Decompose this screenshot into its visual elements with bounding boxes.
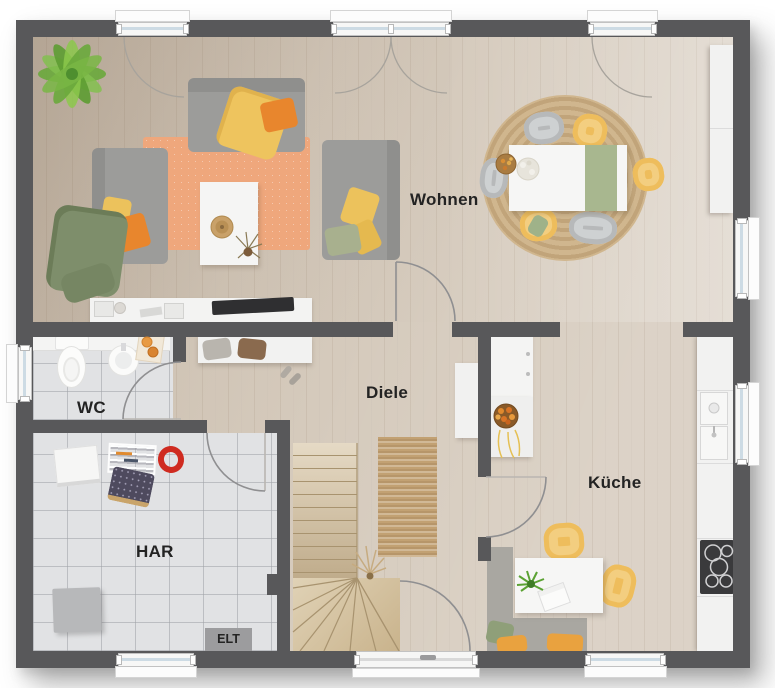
window-sill-top-3: [587, 10, 658, 22]
fridge-handle-2: [526, 372, 530, 376]
floor-plan-screenshot: ELT: [0, 0, 775, 688]
wall-har-east: [277, 420, 290, 651]
counter-seam-2: [697, 463, 733, 464]
window-sill-right-1: [748, 217, 760, 300]
coffee-table: [200, 182, 258, 265]
window-cap: [660, 655, 666, 665]
window-cap: [183, 24, 189, 34]
window-top-1: [118, 22, 187, 36]
hall-runner-rug: [378, 437, 437, 557]
room-label-kueche: Küche: [588, 473, 641, 493]
wall-mid-east: [683, 322, 750, 337]
wall-wc-har: [16, 420, 207, 433]
staircase-straight-flight: [293, 443, 357, 578]
room-label-har: HAR: [136, 542, 174, 562]
sideboard-round-box: [114, 302, 126, 314]
cooktop: [700, 540, 734, 594]
toilet-seat: [63, 357, 80, 382]
window-sill-left: [6, 344, 18, 403]
window-cap: [445, 24, 451, 34]
staircase-winder: [293, 578, 400, 651]
sink-cabinet-upper: [700, 392, 728, 425]
window-sill-top-2: [330, 10, 452, 22]
room-label-diele: Diele: [366, 383, 408, 403]
window-cap: [588, 24, 594, 34]
window-cap: [737, 218, 747, 224]
window-sill-top-1: [115, 10, 190, 22]
counter-seam-3: [697, 538, 733, 539]
wall-mid-west: [16, 322, 393, 337]
window-sill-bottom-2: [584, 666, 667, 678]
window-dining-right: [735, 220, 749, 297]
window-cap: [737, 383, 747, 389]
wall-wc-stub: [173, 337, 186, 362]
window-cap: [331, 24, 337, 34]
window-cap: [20, 345, 30, 351]
wardrobe-bag-gray: [202, 337, 233, 361]
counter-seam-1: [697, 390, 733, 391]
green-pillow-armchair: [324, 223, 362, 256]
sideboard-books-2: [164, 303, 184, 319]
wall-har-notch: [267, 574, 277, 595]
entry-door-sill: [352, 668, 480, 678]
wardrobe-bag-brown: [237, 338, 267, 361]
room-label-wohnen: Wohnen: [410, 190, 479, 210]
dining-table-runner-green: [585, 145, 617, 211]
sideboard-books-1: [94, 301, 114, 317]
kitchen-chair-yellow-1: [543, 522, 585, 562]
window-cap: [116, 24, 122, 34]
window-cap: [354, 655, 360, 665]
bench-pillow-orange-2: [547, 633, 584, 653]
sink-cabinet-lower: [700, 426, 728, 460]
window-mullion: [388, 24, 394, 34]
kitchen-side-counter: [487, 397, 533, 457]
washing-machine: [53, 445, 101, 487]
window-cap: [585, 655, 591, 665]
wall-mid-center: [452, 322, 560, 337]
kitchen-counter-right: [697, 337, 733, 651]
fridge-cabinet: [487, 335, 533, 397]
elt-label: ELT: [217, 632, 240, 646]
hall-slim-cabinet: [455, 363, 478, 438]
window-top-3: [590, 22, 655, 36]
wc-sink-basin: [115, 352, 132, 369]
window-cap: [116, 655, 122, 665]
wall-kitchen-hall-lower: [478, 537, 491, 561]
window-cap: [20, 396, 30, 402]
dining-cabinet-seam: [710, 128, 733, 129]
window-kitchen-bottom: [587, 653, 664, 667]
window-cap: [472, 655, 478, 665]
window-cap: [737, 293, 747, 299]
window-sill-bottom-1: [115, 666, 197, 678]
window-cap: [651, 24, 657, 34]
window-wc-left: [18, 347, 32, 400]
wc-sink-faucet: [121, 343, 126, 351]
wall-kitchen-hall-upper: [478, 337, 491, 477]
wall-left: [16, 20, 33, 668]
window-cap: [190, 655, 196, 665]
gray-storage-box: [52, 587, 102, 633]
window-har-bottom: [118, 653, 194, 667]
wall-right: [733, 20, 750, 668]
room-label-wc: WC: [77, 398, 106, 418]
counter-seam-4: [697, 596, 733, 597]
entry-door-handle: [420, 655, 436, 660]
window-kitchen-right: [735, 385, 749, 463]
elt-electrical-box: ELT: [205, 628, 252, 651]
dining-tall-cabinet: [710, 45, 733, 213]
entry-door-panel-line: [360, 658, 472, 661]
fridge-handle-1: [526, 352, 530, 356]
window-cap: [737, 459, 747, 465]
wc-towel-stack: [135, 332, 165, 363]
window-sill-right-2: [748, 382, 760, 466]
